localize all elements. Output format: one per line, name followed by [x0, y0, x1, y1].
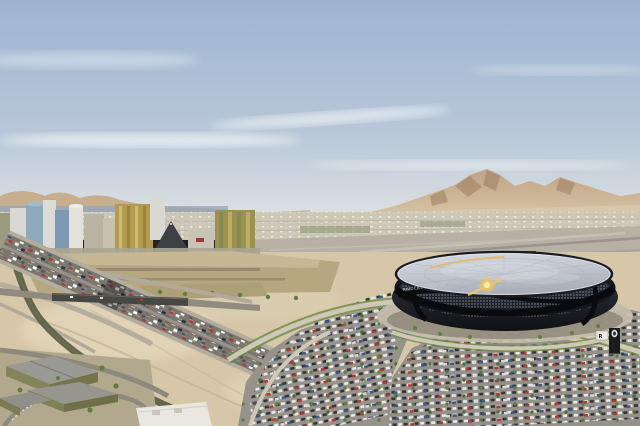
marquee-text: R — [599, 334, 603, 340]
aerial-rendering: RAIDERS STADIUM R — [0, 0, 640, 426]
red-sign — [196, 238, 204, 242]
scene-canvas: RAIDERS STADIUM R — [0, 0, 640, 426]
stadium: RAIDERS STADIUM — [377, 252, 633, 343]
